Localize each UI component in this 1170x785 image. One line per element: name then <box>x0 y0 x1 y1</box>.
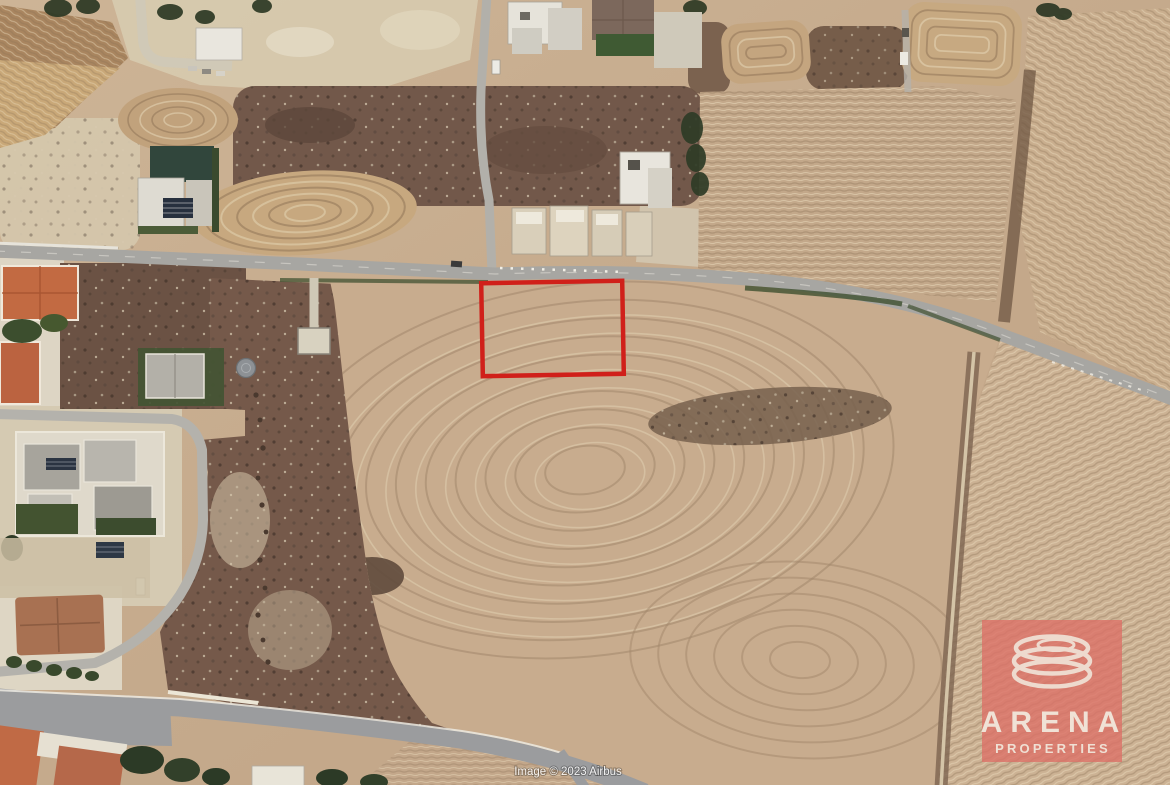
watermark: ARENA PROPERTIES <box>981 620 1128 762</box>
scrub-ne-texture <box>806 26 908 90</box>
trees <box>120 746 164 774</box>
lawn <box>596 34 654 56</box>
building-solar-house <box>138 146 219 234</box>
plow-oval-small <box>118 88 238 152</box>
trees <box>164 758 200 782</box>
building-white <box>252 766 304 785</box>
plow-patch-1 <box>720 19 812 85</box>
track-top-right <box>905 10 908 92</box>
car-on-road <box>451 261 462 268</box>
car <box>188 66 197 71</box>
plow-patch-2 <box>901 1 1023 87</box>
buildings-construction-row <box>512 206 652 256</box>
scrub-dark-patch <box>483 126 607 174</box>
solar-panels <box>46 458 76 470</box>
yard-green <box>96 518 156 535</box>
field-northeast <box>698 86 1016 302</box>
hedge <box>212 148 219 232</box>
garden-trees <box>2 319 42 343</box>
solar-array <box>96 542 124 558</box>
house-gray-roof <box>138 348 224 406</box>
light-patch <box>266 27 334 57</box>
truck <box>492 60 500 74</box>
water-tank <box>237 359 256 378</box>
car <box>216 71 225 76</box>
satellite-image: ARENA PROPERTIES Image © 2023 Airbus <box>0 0 1170 785</box>
building-white-mid <box>620 152 672 208</box>
scrub-dark-patch <box>265 107 355 143</box>
car <box>902 28 909 37</box>
garden-trees <box>40 314 68 332</box>
watermark-brand-text: ARENA <box>981 706 1128 739</box>
light-patch <box>380 10 460 50</box>
building-white <box>196 28 242 60</box>
truck <box>900 52 908 65</box>
imagery-attribution: Image © 2023 Airbus <box>514 766 622 778</box>
car <box>202 69 211 74</box>
watermark-subtitle-text: PROPERTIES <box>995 741 1111 756</box>
aerial-scene: ARENA PROPERTIES Image © 2023 Airbus <box>0 0 1170 785</box>
bare-yard <box>0 538 150 598</box>
utility-structure <box>298 328 330 354</box>
yard-green <box>16 504 78 534</box>
hedge <box>138 226 198 234</box>
courtyard <box>654 12 702 68</box>
